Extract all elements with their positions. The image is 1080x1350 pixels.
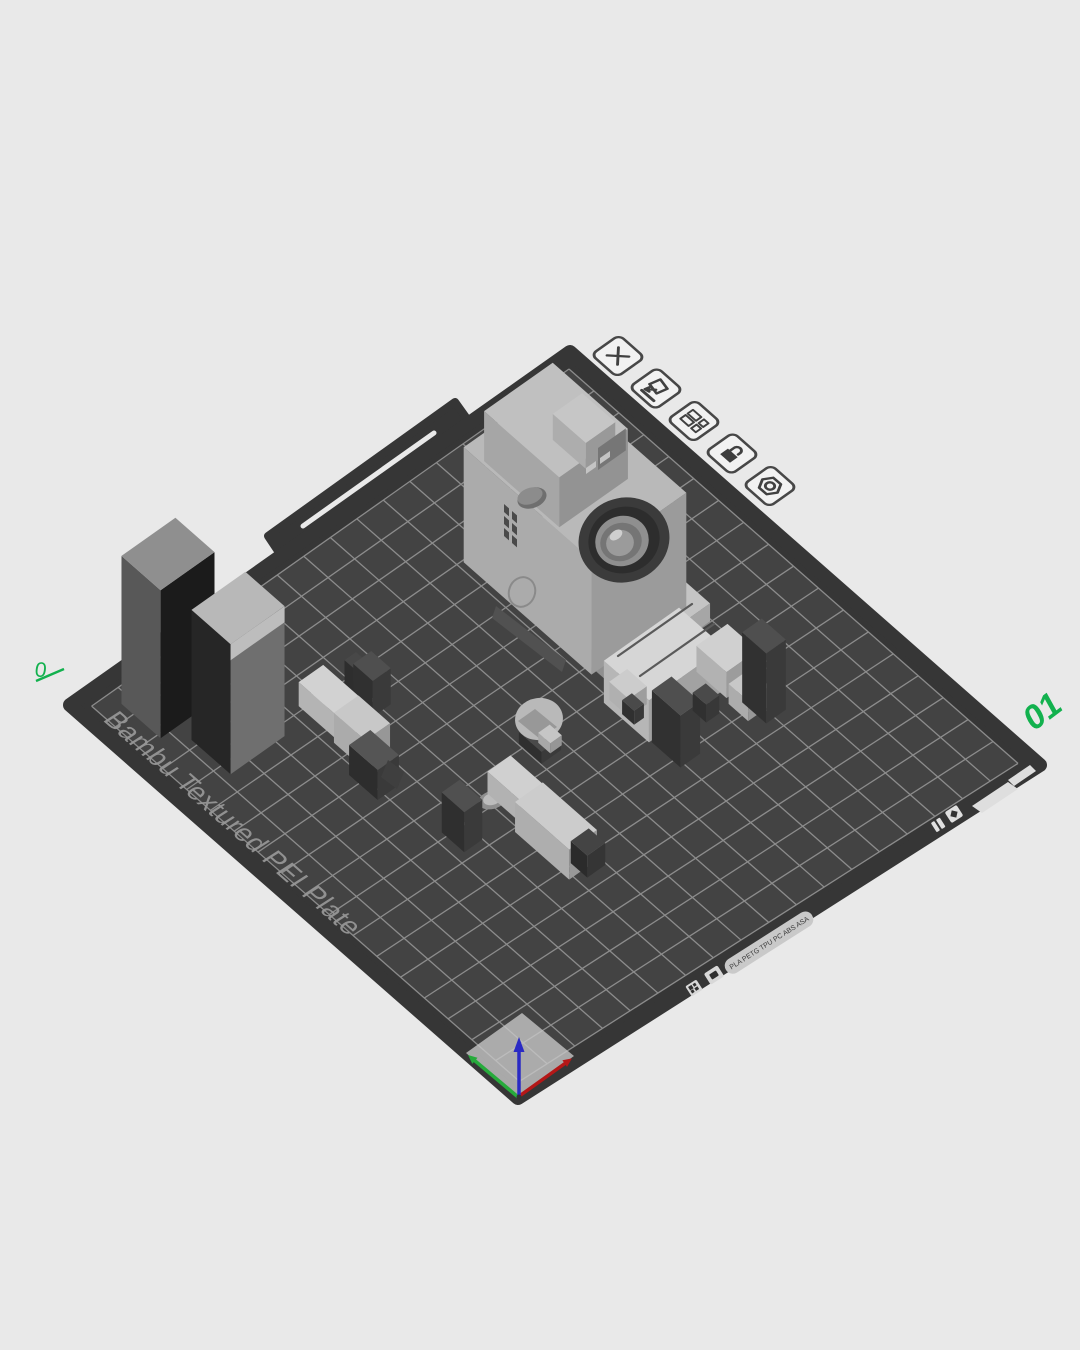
viewport-canvas[interactable]: Bambu Textured PEI Plate PLA PETG TPU PC… <box>0 0 1080 1350</box>
slicer-3d-viewport[interactable]: Bambu Textured PEI Plate PLA PETG TPU PC… <box>0 0 1080 1350</box>
axis-origin-dot <box>517 1095 522 1100</box>
